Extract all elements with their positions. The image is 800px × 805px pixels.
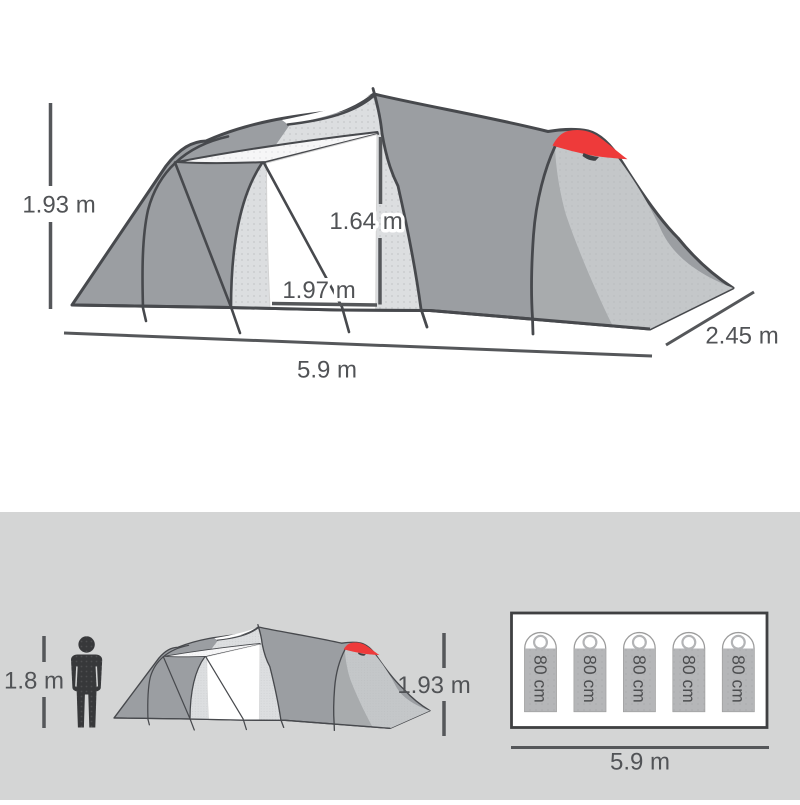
svg-text:5.9 m: 5.9 m xyxy=(297,357,357,384)
svg-text:80 cm: 80 cm xyxy=(679,655,699,703)
svg-text:5.9 m: 5.9 m xyxy=(610,749,670,776)
svg-text:1.97 m: 1.97 m xyxy=(282,277,355,304)
svg-text:80 cm: 80 cm xyxy=(629,655,649,703)
svg-text:2.45 m: 2.45 m xyxy=(705,323,778,350)
svg-text:1.93 m: 1.93 m xyxy=(397,672,470,699)
svg-text:80 cm: 80 cm xyxy=(728,655,748,703)
svg-text:80 cm: 80 cm xyxy=(580,655,600,703)
svg-text:1.93 m: 1.93 m xyxy=(22,192,95,219)
svg-text:80 cm: 80 cm xyxy=(531,655,551,703)
svg-text:1.8 m: 1.8 m xyxy=(4,668,64,695)
svg-text:1.64 m: 1.64 m xyxy=(329,208,402,235)
